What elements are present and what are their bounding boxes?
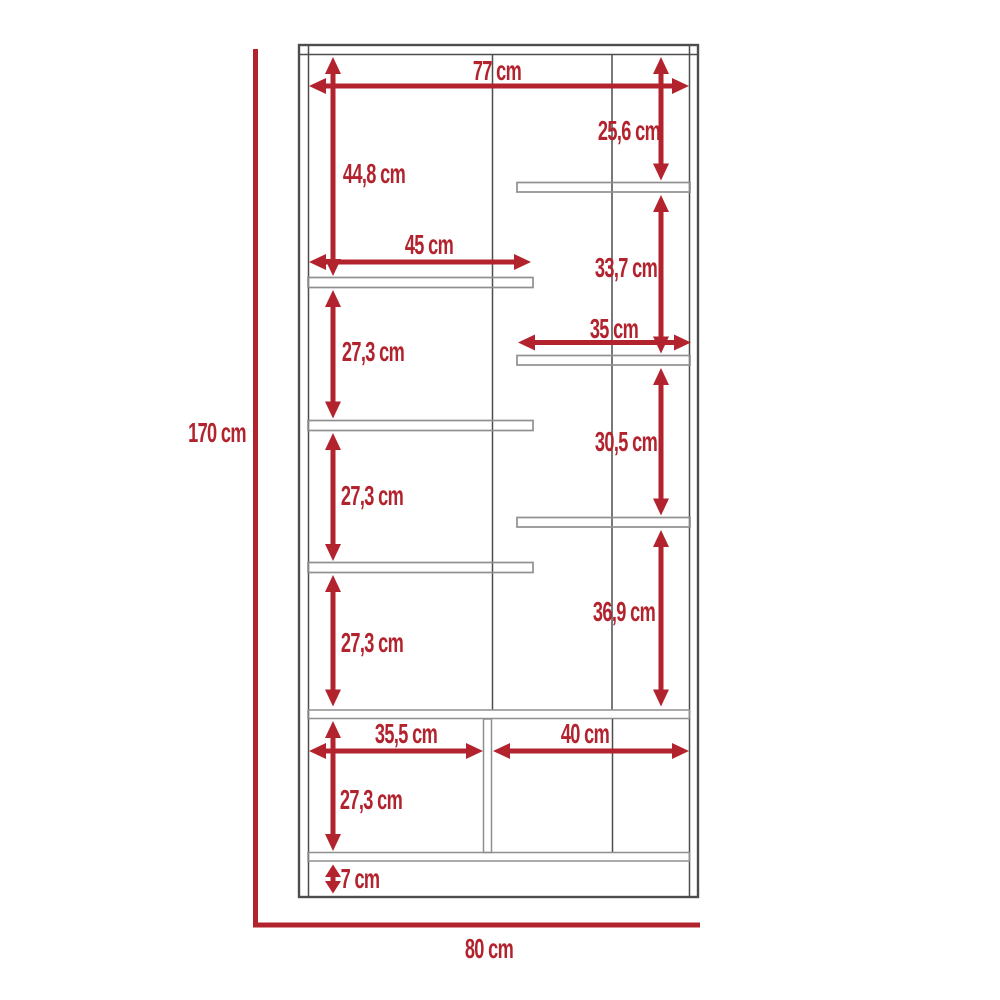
dim-arrow-left-section-4-height [325,575,341,707]
dim-arrow-right-section-4-height-head-bottom [653,690,669,707]
bottom-divider-panel [484,719,492,853]
dim-arrow-right-section-4-height-head-top [653,530,669,547]
dim-arrow-base-height [325,865,341,894]
dim-arrow-top-left-section-height [325,57,341,276]
dim-arrow-left-section-2-height-head-bottom [325,402,341,419]
dim-arrow-right-shelf-width-head-right [674,335,691,351]
dim-arrow-left-shelf-width-head-right [514,254,531,270]
dim-arrow-left-section-3-height-head-bottom [325,544,341,561]
dim-arrow-bottom-section-height-head-bottom [325,834,341,851]
dim-label-top-right-section-height: 25,6 cm [598,116,660,147]
dim-label-bottom-left-width: 35,5 cm [375,719,437,750]
dim-arrow-left-section-2-height [325,290,341,419]
dim-arrow-right-section-2-height-head-top [653,195,669,212]
diagram-canvas: 77 cm25,6 cm44,8 cm45 cm33,7 cm27,3 cm35… [0,0,1000,1000]
dim-arrow-left-section-4-height-head-bottom [325,690,341,707]
dim-arrow-bottom-section-height [325,721,341,851]
dim-arrow-bottom-right-width-head-left [493,743,510,759]
dim-arrow-base-height-head-bottom [325,881,341,894]
dim-label-right-section-2-height: 33,7 cm [595,253,657,284]
dim-arrow-inner-width-head-right [672,78,689,94]
bottom-shelf-board [308,853,690,862]
dimension-annotations [256,49,701,925]
dim-label-left-section-4-height: 27,3 cm [341,628,403,659]
dim-arrow-right-section-4-height [653,530,669,707]
dim-arrow-top-right-section-height-head-top [653,57,669,74]
shelf-right-1 [517,183,690,193]
overall-extent-line [256,49,701,925]
dim-label-left-section-2-height: 27,3 cm [342,337,404,368]
dim-label-right-shelf-width: 35 cm [590,314,638,345]
dim-label-right-section-4-height: 36,9 cm [593,597,655,628]
dim-arrow-left-section-3-height [325,433,341,561]
dim-arrow-top-left-section-height-head-top [325,57,341,74]
dim-arrow-left-section-4-height-head-top [325,575,341,592]
dim-label-right-section-3-height: 30,5 cm [595,427,657,458]
dim-arrow-right-section-3-height-head-top [653,368,669,385]
dim-arrow-bottom-section-height-head-top [325,721,341,738]
dim-arrow-inner-width-head-left [309,78,326,94]
dim-arrow-left-shelf-width-head-left [309,254,326,270]
dim-label-overall-height: 170 cm [188,418,246,449]
dim-label-base-height: 7 cm [341,864,380,895]
shelf-left-3 [308,563,533,573]
dimension-diagram: 77 cm25,6 cm44,8 cm45 cm33,7 cm27,3 cm35… [0,0,1000,1000]
dim-label-inner-width: 77 cm [473,56,521,87]
dim-label-top-left-section-height: 44,8 cm [343,159,405,190]
dim-arrow-bottom-left-width-head-right [466,743,483,759]
dim-arrow-bottom-left-width-head-left [309,743,326,759]
dim-arrow-left-section-3-height-head-top [325,433,341,450]
mid-horizontal-divider [308,710,690,719]
dim-arrow-bottom-right-width-head-right [672,743,689,759]
dim-arrow-right-shelf-width-head-left [518,335,535,351]
shelf-left-2 [308,421,533,431]
shelf-right-2 [517,356,690,366]
dim-arrow-right-section-3-height-head-bottom [653,499,669,516]
shelf-left-1 [308,278,533,288]
dim-label-left-shelf-width: 45 cm [405,230,453,261]
shelf-right-3 [517,518,690,528]
dim-label-overall-width: 80 cm [465,934,513,965]
dim-arrow-base-height-head-top [325,865,341,878]
dim-label-bottom-section-height: 27,3 cm [340,785,402,816]
dim-arrow-left-section-2-height-head-top [325,290,341,307]
dim-label-bottom-right-width: 40 cm [561,719,609,750]
dim-arrow-top-right-section-height-head-bottom [653,164,669,181]
dim-label-left-section-3-height: 27,3 cm [341,481,403,512]
